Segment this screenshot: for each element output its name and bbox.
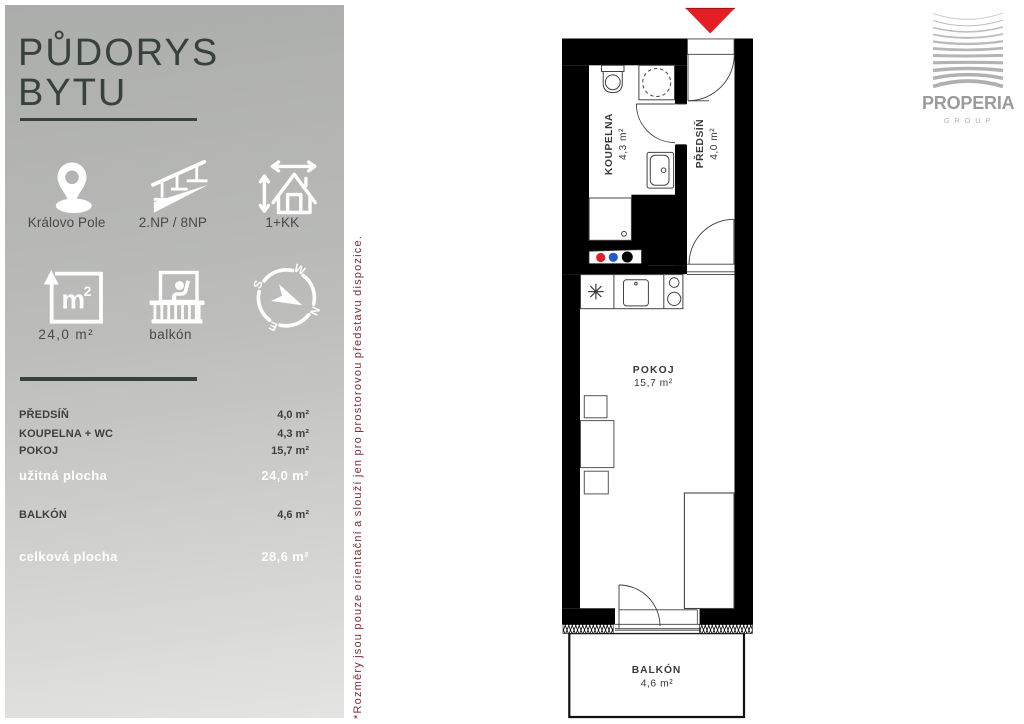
svg-text:PŘEDSÍŇ: PŘEDSÍŇ (693, 119, 706, 169)
svg-text:m: m (62, 284, 86, 314)
svg-text:15,7 m²: 15,7 m² (634, 378, 673, 389)
svg-text:BALKÓN: BALKÓN (632, 663, 681, 676)
svg-text:4,6 m²: 4,6 m² (641, 679, 674, 690)
svg-text:POKOJ: POKOJ (633, 365, 675, 376)
svg-text:2: 2 (84, 283, 92, 299)
svg-text:KOUPELNA: KOUPELNA (604, 113, 615, 175)
svg-text:4,0 m²: 4,0 m² (709, 128, 720, 160)
svg-text:4,3 m²: 4,3 m² (618, 128, 629, 160)
